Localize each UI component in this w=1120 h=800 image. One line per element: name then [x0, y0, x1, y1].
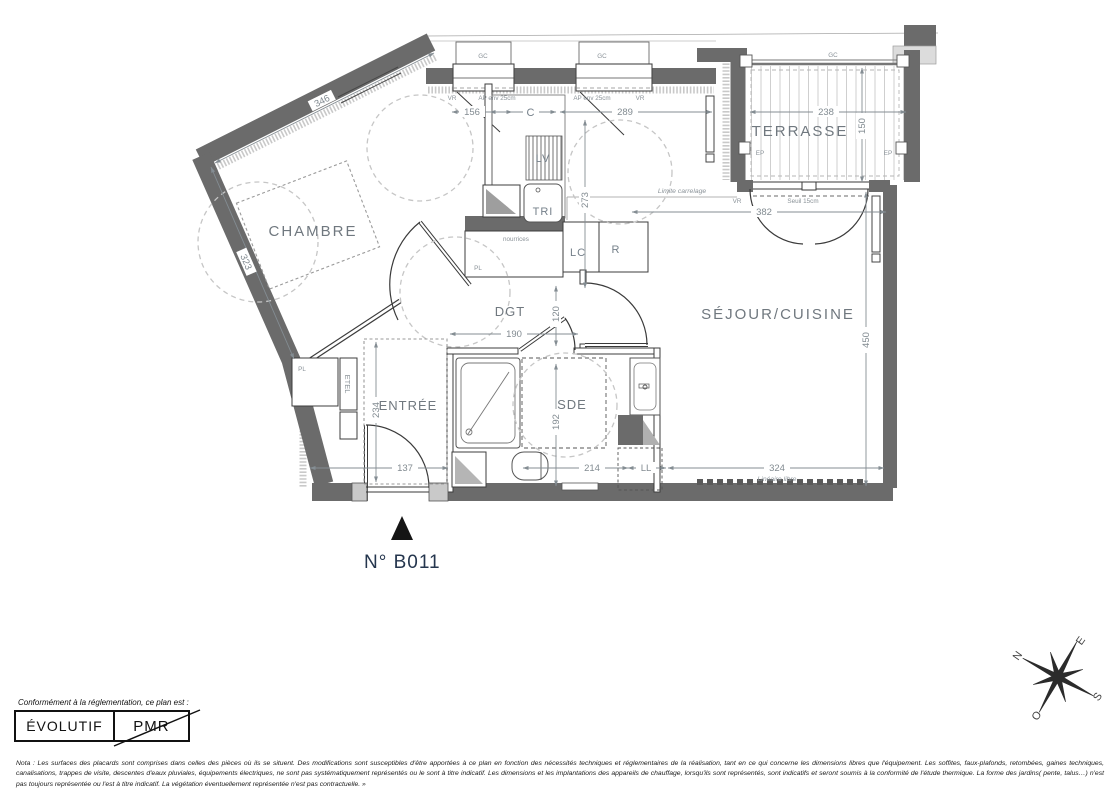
svg-text:289: 289 — [617, 107, 633, 118]
svg-text:192: 192 — [551, 414, 562, 430]
svg-text:LL: LL — [641, 463, 652, 474]
entrance-marker — [391, 516, 413, 540]
svg-text:190: 190 — [506, 329, 522, 340]
svg-text:ETEL: ETEL — [343, 375, 352, 394]
window — [453, 64, 514, 91]
nota-text: Nota : Les surfaces des placards sont co… — [16, 759, 1104, 791]
ep-downpipe — [739, 142, 750, 154]
svg-text:GC: GC — [478, 53, 488, 60]
svg-text:450: 450 — [861, 332, 872, 348]
svg-text:324: 324 — [769, 463, 785, 474]
ep-downpipe — [896, 142, 907, 154]
svg-text:Seuil 15cm: Seuil 15cm — [787, 198, 818, 205]
svg-text:EP: EP — [884, 150, 892, 157]
entry-threshold — [352, 483, 448, 501]
svg-text:156: 156 — [464, 107, 480, 118]
legend-evolutif: ÉVOLUTIF — [16, 712, 115, 740]
compass-s: S — [1091, 691, 1105, 704]
svg-text:VR: VR — [733, 198, 742, 205]
svg-text:238: 238 — [818, 107, 834, 118]
compass-n: N — [1011, 649, 1025, 662]
svg-text:GC: GC — [597, 53, 607, 60]
compass-star — [1023, 642, 1094, 713]
svg-text:214: 214 — [584, 463, 600, 474]
svg-text:LV: LV — [536, 153, 551, 165]
svg-text:150: 150 — [857, 118, 868, 134]
radiator — [872, 196, 880, 252]
radiator — [706, 96, 714, 152]
window — [576, 64, 652, 91]
svg-text:nourrices: nourrices — [503, 236, 529, 243]
water-heater — [618, 415, 643, 445]
room-sejour: SÉJOUR/CUISINE — [701, 306, 855, 323]
svg-text:273: 273 — [580, 192, 591, 208]
room-chambre: CHAMBRE — [268, 223, 357, 240]
room-entree: ENTRÉE — [379, 398, 438, 413]
legend-pmr: PMR — [115, 712, 188, 740]
svg-text:VR: VR — [636, 95, 645, 102]
svg-text:PL: PL — [474, 265, 482, 272]
floor-plan-page: 346 323 156 C 289 273 238 150 382 450 19… — [0, 0, 1120, 800]
svg-text:Linéaire libre: Linéaire libre — [758, 476, 797, 483]
compass-rose: N E S O — [1011, 635, 1105, 723]
svg-text:137: 137 — [397, 463, 413, 474]
svg-text:R: R — [612, 244, 621, 256]
floor-plan-drawing: 346 323 156 C 289 273 238 150 382 450 19… — [0, 0, 1120, 745]
neighbour-wall — [904, 25, 936, 46]
room-terrasse: TERRASSE — [752, 123, 849, 140]
room-sde: SDE — [557, 397, 587, 412]
svg-text:LC: LC — [570, 247, 586, 259]
compass-o: O — [1030, 709, 1045, 723]
svg-text:GC: GC — [828, 52, 838, 59]
compass-e: E — [1074, 635, 1088, 648]
svg-text:C: C — [527, 107, 536, 119]
svg-text:AP env 25cm: AP env 25cm — [573, 95, 610, 102]
svg-text:TRI: TRI — [533, 206, 554, 218]
room-dgt: DGT — [495, 304, 525, 319]
legend-table: ÉVOLUTIF PMR — [14, 710, 190, 742]
legend: Conformément à la réglementation, ce pla… — [14, 698, 214, 742]
svg-text:AP env 25cm: AP env 25cm — [478, 95, 515, 102]
vanity — [630, 358, 660, 415]
svg-text:VR: VR — [448, 95, 457, 102]
legend-intro: Conformément à la réglementation, ce pla… — [18, 698, 214, 707]
svg-text:382: 382 — [756, 207, 772, 218]
svg-text:120: 120 — [551, 306, 562, 322]
svg-text:Limite carrelage: Limite carrelage — [658, 188, 707, 195]
unit-number: N° B011 — [364, 552, 441, 573]
svg-text:PL: PL — [298, 366, 306, 373]
svg-text:EP: EP — [756, 150, 764, 157]
